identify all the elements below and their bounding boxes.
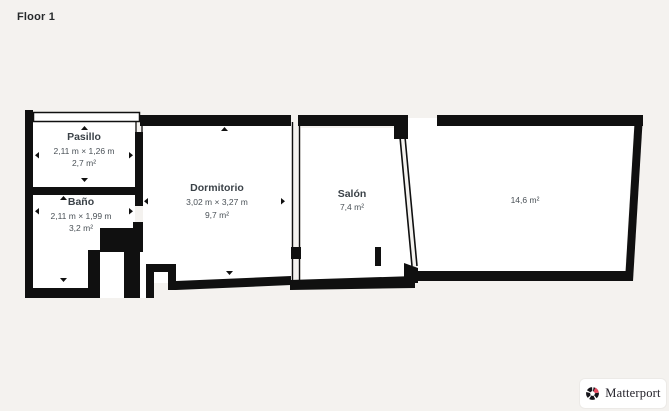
room-area: 2,7 m² [72, 158, 96, 168]
matterport-pinwheel-icon [585, 386, 600, 401]
room-name: Pasillo [67, 131, 101, 143]
room-area: 3,2 m² [69, 223, 93, 233]
room-dormitorio: Dormitorio 3,02 m × 3,27 m 9,7 m² [143, 126, 291, 276]
matterport-logo-text: Matterport [605, 386, 660, 401]
room-dimensions: 3,02 m × 3,27 m [186, 197, 248, 207]
room-pasillo: Pasillo 2,11 m × 1,26 m 2,7 m² [33, 131, 135, 168]
room-dimensions: 2,11 m × 1,99 m [50, 211, 111, 221]
room-dimensions: 2,11 m × 1,26 m [53, 146, 114, 156]
room-salon: Salón 7,4 m² [301, 128, 403, 273]
matterport-logo[interactable]: Matterport [580, 379, 666, 408]
floorplan-page: Floor 1 [0, 0, 669, 411]
room-unlabeled: 14,6 m² [420, 126, 630, 272]
room-area: 7,4 m² [340, 202, 364, 212]
room-area: 9,7 m² [205, 210, 229, 220]
room-name: Dormitorio [190, 182, 244, 194]
room-area: 14,6 m² [511, 195, 540, 205]
room-name: Baño [68, 196, 94, 208]
room-name: Salón [338, 188, 367, 200]
window-band [34, 113, 140, 122]
room-bano: Baño 2,11 m × 1,99 m 3,2 m² [33, 196, 129, 233]
